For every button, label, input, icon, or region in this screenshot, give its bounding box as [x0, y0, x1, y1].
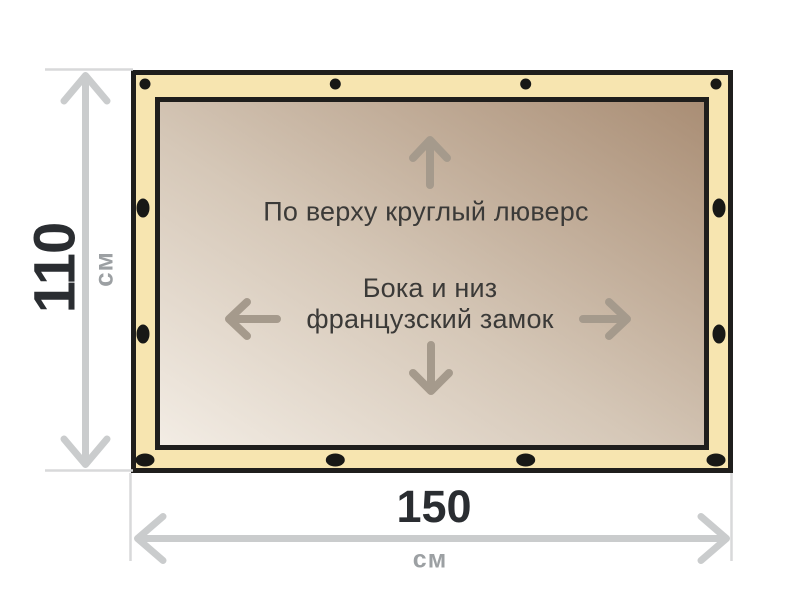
middle-note: Бока и низ французский замок: [306, 273, 553, 335]
grommet-icon: [137, 199, 150, 218]
grommet-icon: [520, 79, 531, 90]
grommet-icon: [137, 325, 150, 344]
grommet-icon: [136, 454, 155, 467]
grommet-icon: [707, 454, 726, 467]
grommet-icon: [140, 79, 151, 90]
grommet-icon: [326, 454, 345, 467]
middle-note-line2: французский замок: [306, 304, 553, 335]
tarp-dimension-diagram: По верху круглый люверс Бока и низ франц…: [0, 0, 800, 600]
grommet-icon: [516, 454, 535, 467]
top-note: По верху круглый люверс: [263, 197, 588, 228]
height-unit: см: [89, 251, 120, 287]
height-value: 110: [22, 223, 89, 314]
grommet-icon: [330, 79, 341, 90]
grommet-icon: [713, 199, 726, 218]
width-unit: см: [413, 546, 447, 575]
grommet-icon: [713, 325, 726, 344]
middle-note-line1: Бока и низ: [306, 273, 553, 304]
width-value: 150: [396, 481, 471, 533]
grommet-icon: [711, 79, 722, 90]
